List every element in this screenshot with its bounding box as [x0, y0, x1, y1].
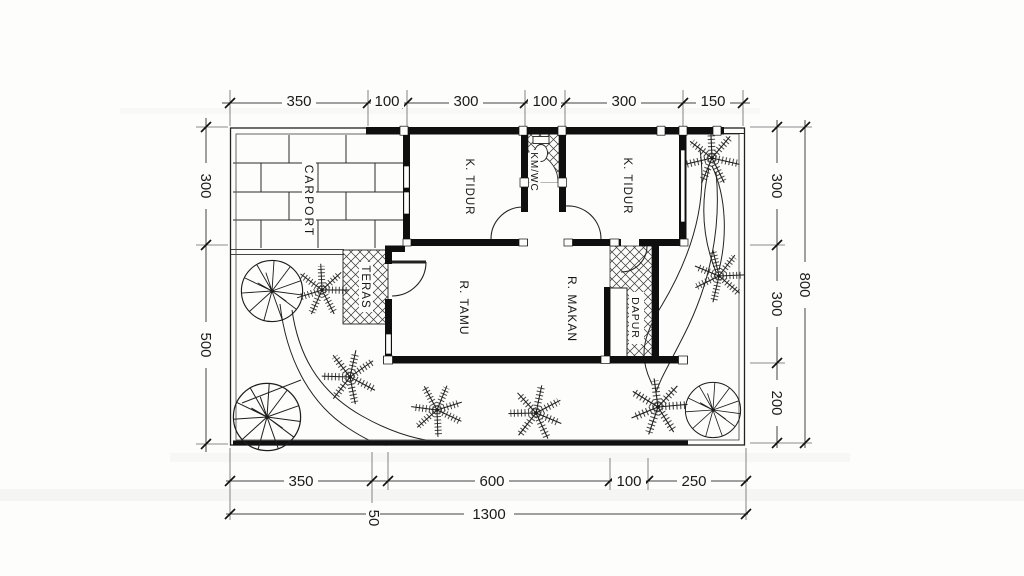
- dim-top-3: 100: [532, 93, 557, 110]
- dim-top-5: 150: [700, 93, 725, 110]
- dim-bottom-small: 50: [365, 510, 382, 527]
- top-wall: [366, 127, 724, 135]
- terrace-stub-wall: [385, 246, 405, 253]
- hall-wall-left: [521, 134, 528, 212]
- kitchen-wall-left: [604, 287, 610, 357]
- room-label-dining: R. MAKAN: [565, 276, 579, 342]
- floor-plan-scan: 350 100 300 100 300 150 300 500 300 300 …: [0, 0, 1024, 576]
- fern-icon: [683, 241, 754, 312]
- dim-bottom-total: 1300: [472, 506, 505, 523]
- dim-bottom-0: 350: [288, 473, 313, 490]
- tree-icon: [685, 382, 740, 437]
- window-slot: [386, 334, 391, 354]
- floor-plan-svg: 350 100 300 100 300 150 300 500 300 300 …: [0, 0, 1024, 576]
- dim-top-0: 350: [286, 93, 311, 110]
- dim-left-0: 300: [197, 173, 214, 198]
- dim-top-1: 100: [374, 93, 399, 110]
- room-label-bathroom: KM/WC: [528, 152, 539, 191]
- fern-icon: [505, 383, 567, 445]
- dim-bottom-3: 250: [681, 473, 706, 490]
- living-wall-upper: [385, 252, 392, 264]
- fern-icon: [316, 343, 385, 412]
- window-slot: [681, 150, 685, 222]
- door-swings: [392, 206, 647, 296]
- dim-right-1: 300: [768, 291, 785, 316]
- bedroom-right-door-arc: [566, 206, 601, 239]
- room-label-carport: CARPORT: [302, 165, 316, 237]
- room-label-kitchen: DAPUR: [629, 297, 641, 339]
- room-label-bedroom-left: K. TIDUR: [463, 159, 475, 216]
- bedroom-left-wall: [403, 134, 410, 246]
- tree-icon: [241, 260, 302, 321]
- dim-top-4: 300: [611, 93, 636, 110]
- dim-left-1: 500: [197, 332, 214, 357]
- front-door-arc: [392, 262, 426, 296]
- dim-right-0: 300: [768, 173, 785, 198]
- hall-wall-right: [559, 134, 566, 212]
- dim-right-2: 200: [768, 390, 785, 415]
- dim-top-2: 300: [453, 93, 478, 110]
- front-fence-wall: [233, 441, 688, 446]
- room-label-living: R. TAMU: [457, 280, 471, 335]
- mid-wall-a: [403, 239, 528, 246]
- house-bottom-wall: [383, 356, 688, 364]
- carport-paving: [233, 135, 403, 248]
- window-slot: [404, 166, 409, 188]
- room-label-terrace: TERAS: [359, 265, 371, 308]
- fern-icon: [401, 375, 473, 447]
- dim-bottom-1: 600: [479, 473, 504, 490]
- kitchen-counter: [610, 288, 627, 357]
- carport-edge-line: [231, 250, 344, 255]
- dim-bottom-2: 100: [616, 473, 641, 490]
- window-slot: [404, 192, 409, 214]
- kitchen-wall-right: [652, 245, 659, 357]
- dim-right-total: 800: [796, 272, 813, 297]
- room-label-bedroom-right: K. TIDUR: [621, 158, 633, 215]
- bedroom-left-door-arc: [491, 207, 523, 239]
